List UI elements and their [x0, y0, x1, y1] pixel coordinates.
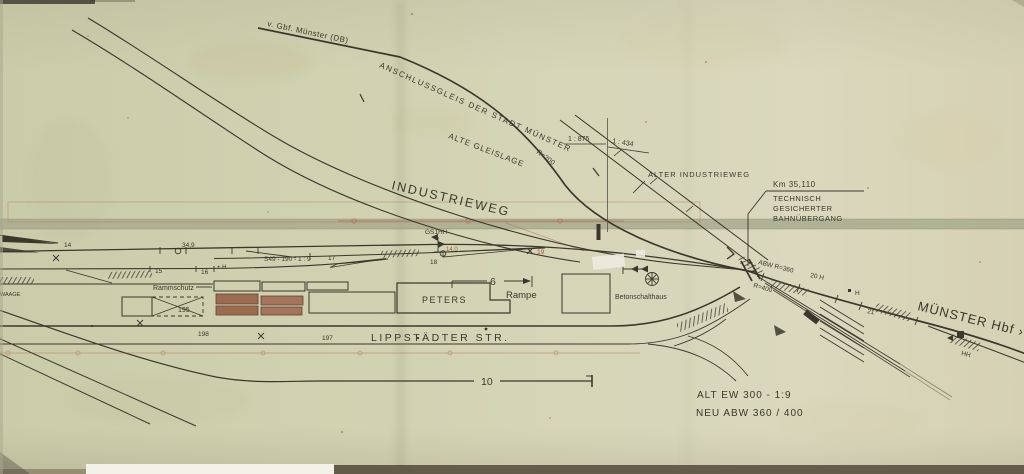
number-18: 18 — [430, 259, 438, 266]
number-195: 195 — [178, 307, 190, 314]
brown-building-3 — [216, 306, 258, 315]
alter-industrieweg-label: ALTER INDUSTRIEWEG — [648, 170, 750, 179]
number-14: 14 — [64, 242, 72, 249]
bue-label-3: BAHNÜBERGANG — [773, 214, 843, 223]
stop-marker-bar — [597, 224, 601, 240]
bue-label-2: GESICHERTER — [773, 204, 833, 213]
track-plan-svg: 1 : 875 1 : 434 Km 35,110 TECHNISCH GESI… — [0, 0, 1024, 474]
number-14-0: 14,0 — [446, 247, 458, 253]
scanned-track-plan: 1 : 875 1 : 434 Km 35,110 TECHNISCH GESI… — [0, 0, 1024, 474]
note-alt-label: ALT EW 300 - 1:9 — [697, 390, 792, 401]
number-19: 19 — [537, 249, 545, 256]
peters-label: PETERS — [422, 295, 467, 305]
brown-building-2 — [261, 296, 303, 305]
brown-building-4 — [261, 307, 302, 315]
bue-label-1: TECHNISCH — [773, 194, 821, 203]
note-neu-label: NEU ABW 360 / 400 — [696, 408, 804, 419]
lippstaedter-label: LIPPSTÄDTER STR. — [371, 332, 510, 344]
betonschalthaus-label: Betonschalthaus — [615, 294, 667, 301]
industrieweg-road-band — [0, 219, 1024, 229]
number-16: 16 — [201, 269, 209, 276]
rampe-label: Rampe — [506, 290, 537, 301]
rammschutz-label: Rammschutz — [153, 285, 194, 292]
plus-h-label: + H — [217, 265, 227, 271]
gradient-left-label: 1 : 875 — [568, 136, 590, 143]
waage-label: WAAGE — [0, 292, 21, 298]
gs1hh-label: GS1HH — [425, 229, 448, 236]
number-197: 197 — [322, 335, 333, 342]
number-15: 15 — [155, 268, 163, 275]
number-198: 198 — [198, 331, 209, 338]
paper-background — [0, 0, 1024, 474]
km-label: Km 35,110 — [773, 180, 816, 189]
turnout-spec-label: S49 - 190 - 1 : 9 — [264, 256, 311, 263]
number-6: 6 — [490, 276, 496, 288]
number-34-9: 34,9 — [182, 242, 195, 249]
number-17: 17 — [328, 255, 336, 262]
number-10: 10 — [481, 376, 493, 388]
wheel-symbol — [646, 273, 659, 286]
h-right-label: H — [855, 290, 860, 297]
brown-building-1 — [216, 294, 258, 304]
